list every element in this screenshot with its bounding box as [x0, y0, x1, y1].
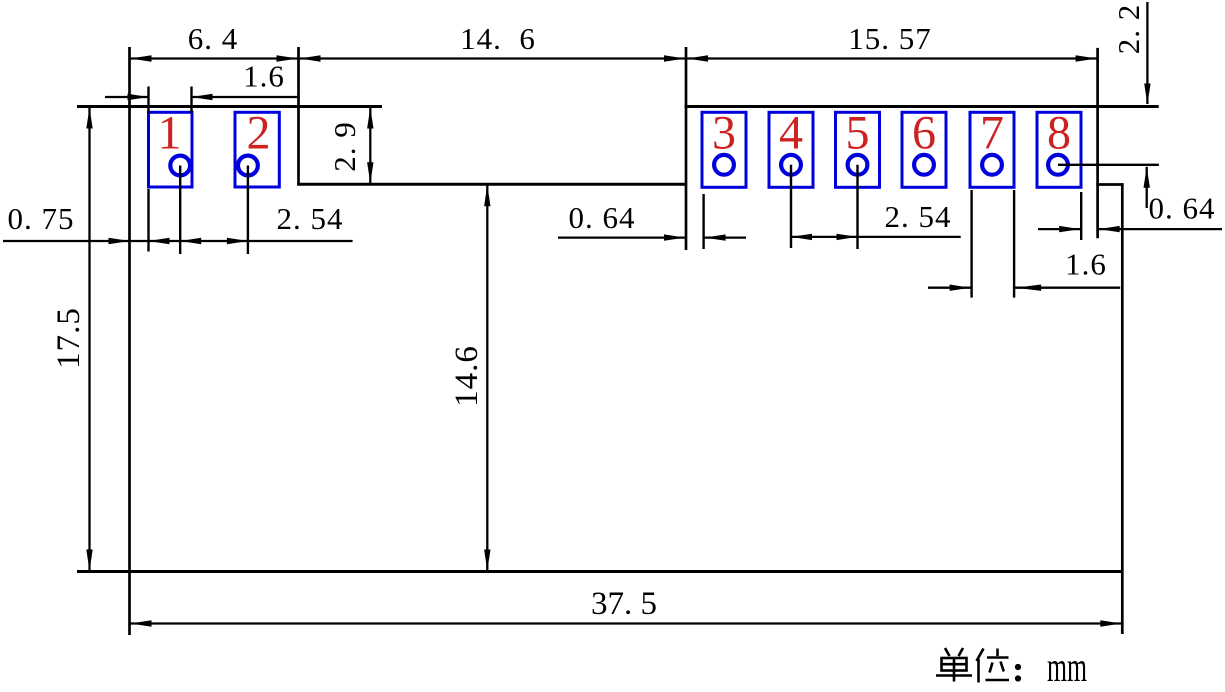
- svg-text:2. 2: 2. 2: [1111, 4, 1146, 55]
- svg-text:0. 75: 0. 75: [8, 201, 75, 236]
- svg-text:2. 54: 2. 54: [277, 201, 344, 236]
- svg-text:2. 54: 2. 54: [885, 199, 952, 234]
- svg-text:15. 57: 15. 57: [848, 21, 932, 56]
- svg-text:6: 6: [912, 107, 936, 160]
- svg-text:5: 5: [846, 107, 870, 160]
- svg-text:2. 9: 2. 9: [327, 121, 362, 172]
- svg-text:37. 5: 37. 5: [591, 586, 657, 622]
- svg-text:17.5: 17.5: [51, 307, 87, 369]
- svg-text:14. 6: 14. 6: [460, 21, 536, 56]
- svg-text:4: 4: [779, 107, 803, 160]
- svg-text:7: 7: [980, 107, 1004, 160]
- svg-text:1.6: 1.6: [1065, 247, 1107, 282]
- svg-text:6. 4: 6. 4: [188, 21, 239, 56]
- svg-text:mm: mm: [1047, 645, 1087, 691]
- svg-text:3: 3: [712, 107, 736, 160]
- svg-text:1.6: 1.6: [243, 59, 285, 94]
- svg-text:0. 64: 0. 64: [1149, 191, 1216, 226]
- svg-text:1: 1: [158, 107, 182, 160]
- svg-text:0. 64: 0. 64: [569, 200, 636, 235]
- svg-text:8: 8: [1047, 107, 1071, 160]
- svg-text:2: 2: [247, 107, 271, 160]
- svg-text:14.6: 14.6: [449, 345, 485, 407]
